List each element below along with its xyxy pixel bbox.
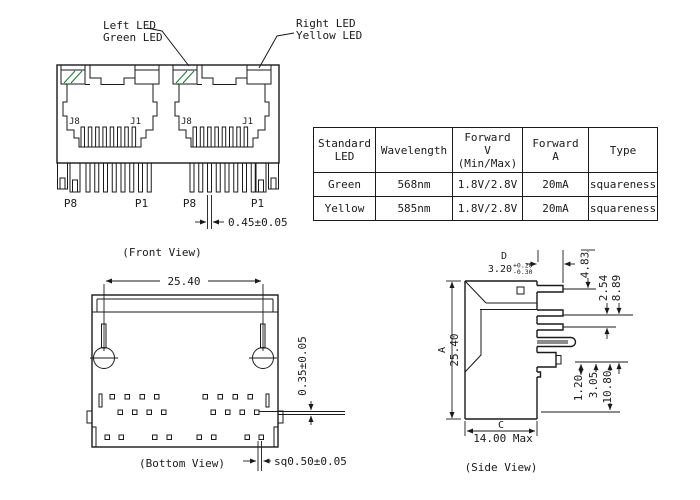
side-view-caption: (Side View): [465, 461, 538, 474]
contact-j8-label: J8: [181, 117, 192, 127]
bottom-view-caption: (Bottom View): [139, 457, 225, 470]
dimension-2-54: 2.54: [597, 274, 610, 339]
through-hole-pins-left: [86, 163, 151, 192]
dim-a-value: 25.40: [448, 333, 461, 366]
pin-p1-label: P1: [251, 197, 264, 210]
contact-j8-label: J8: [69, 117, 80, 127]
pin-p8-label: P8: [64, 197, 77, 210]
pin-p8-label: P8: [183, 197, 196, 210]
drawing-svg: Left LED Green LED Right LED Yellow LED …: [0, 0, 700, 500]
cell-forward-a: 20mA: [523, 173, 589, 197]
latch-key-notch: [202, 65, 247, 85]
shield-tabs: [58, 163, 279, 192]
right-led-leader-line: [259, 33, 294, 68]
cell-type: squareness: [589, 197, 658, 221]
width-dim-text: 25.40: [167, 275, 200, 288]
led-spec-table: Standard LED Wavelength Forward V (Min/M…: [313, 127, 658, 221]
side-body: [465, 281, 576, 419]
front-edge-band: [92, 299, 278, 312]
connector-datasheet-drawing: Left LED Green LED Right LED Yellow LED …: [0, 0, 700, 500]
cell-forward-v: 1.8V/2.8V: [453, 173, 523, 197]
cell-wavelength: 585nm: [376, 197, 453, 221]
pin-offset-dim-text: 0.35±0.05: [296, 336, 309, 396]
pin-grid-row-1: [99, 394, 269, 407]
pin-square-dim-text: sq0.50±0.05: [274, 455, 347, 468]
yellow-led: [247, 70, 271, 84]
green-led-hatch: [71, 71, 82, 83]
side-view: D 3.20 +0.20 -0.30 A 25.40 C 14.00 Max: [437, 250, 633, 474]
cell-led-color: Yellow: [314, 197, 376, 221]
dim-c-letter: C: [498, 420, 504, 431]
dim-d-value: 3.20: [488, 264, 512, 275]
pin-offset-dimension: 0.35±0.05: [259, 336, 345, 425]
col-header-type: Type: [589, 128, 658, 173]
cell-type: squareness: [589, 173, 658, 197]
contact-j1-label: J1: [130, 117, 141, 127]
dim-1-20-text: 1.20: [572, 375, 585, 402]
dim-10-80-text: 10.80: [601, 370, 614, 403]
pin-p1-label: P1: [135, 197, 148, 210]
table-row-yellow: Yellow 585nm 1.8V/2.8V 20mA squareness: [314, 197, 658, 221]
dimension-3-05: 3.05: [587, 364, 602, 398]
dim-3-05-text: 3.05: [587, 372, 600, 399]
cell-led-color: Green: [314, 173, 376, 197]
green-led-label: Green LED: [103, 31, 163, 44]
pin-grid-row-3: [105, 435, 264, 440]
dimension-8-89: 8.89: [610, 275, 623, 374]
contact-j1-label: J1: [242, 117, 253, 127]
dimension-d: D 3.20 +0.20 -0.30: [488, 250, 575, 283]
col-header-wavelength: Wavelength: [376, 128, 453, 173]
dimension-c: C 14.00 Max: [465, 420, 537, 445]
led-mount-lines: [61, 65, 159, 70]
pin-grid-row-2: [118, 410, 259, 415]
front-body-outline: [57, 65, 279, 163]
dimension-1-20: 1.20: [572, 364, 587, 401]
green-led-hatch: [176, 71, 187, 83]
dimension-4-83: 4.83: [579, 251, 595, 288]
yellow-led-label: Yellow LED: [296, 29, 362, 42]
dim-d-tol-minus: -0.30: [513, 268, 533, 276]
rj45-port-left: J8 J1: [61, 65, 159, 147]
col-header-forward-v: Forward V (Min/Max): [453, 128, 523, 173]
width-dimension: 25.40: [104, 275, 263, 351]
dim-2-54-text: 2.54: [597, 274, 610, 301]
dim-a-letter: A: [437, 347, 448, 353]
dimension-10-80: 10.80: [601, 364, 616, 410]
dim-8-89-text: 8.89: [610, 275, 623, 302]
dim-d-letter: D: [501, 251, 507, 262]
green-led-hatch: [183, 71, 194, 83]
col-header-standard-led: Standard LED: [314, 128, 376, 173]
contact-comb: [193, 127, 248, 147]
led-window: [517, 287, 524, 294]
cell-wavelength: 568nm: [376, 173, 453, 197]
front-view-caption: (Front View): [122, 246, 201, 259]
dimension-a: A 25.40: [437, 281, 461, 419]
bottom-body-outline: [92, 295, 278, 447]
latch-key-notch: [90, 65, 135, 85]
table-row-green: Green 568nm 1.8V/2.8V 20mA squareness: [314, 173, 658, 197]
dim-c-value: 14.00 Max: [473, 432, 533, 445]
cell-forward-a: 20mA: [523, 197, 589, 221]
pin-square-dimension: sq0.50±0.05: [243, 441, 347, 471]
cell-forward-v: 1.8V/2.8V: [453, 197, 523, 221]
rj45-port-right: J8 J1: [173, 65, 271, 147]
bottom-view: 25.40: [87, 275, 347, 471]
col-header-forward-a: Forward A: [523, 128, 589, 173]
dim-4-83-text: 4.83: [579, 252, 592, 279]
corner-notches: [87, 411, 283, 447]
through-hole-pins-right: [190, 163, 255, 192]
pin-width-dim-text: 0.45±0.05: [228, 216, 288, 229]
pin-width-dimension: 0.45±0.05: [195, 195, 288, 229]
green-led-hatch: [64, 71, 75, 83]
led-mount-lines: [173, 65, 271, 70]
table-header-row: Standard LED Wavelength Forward V (Min/M…: [314, 128, 658, 173]
yellow-led: [135, 70, 159, 84]
contact-comb: [81, 127, 136, 147]
